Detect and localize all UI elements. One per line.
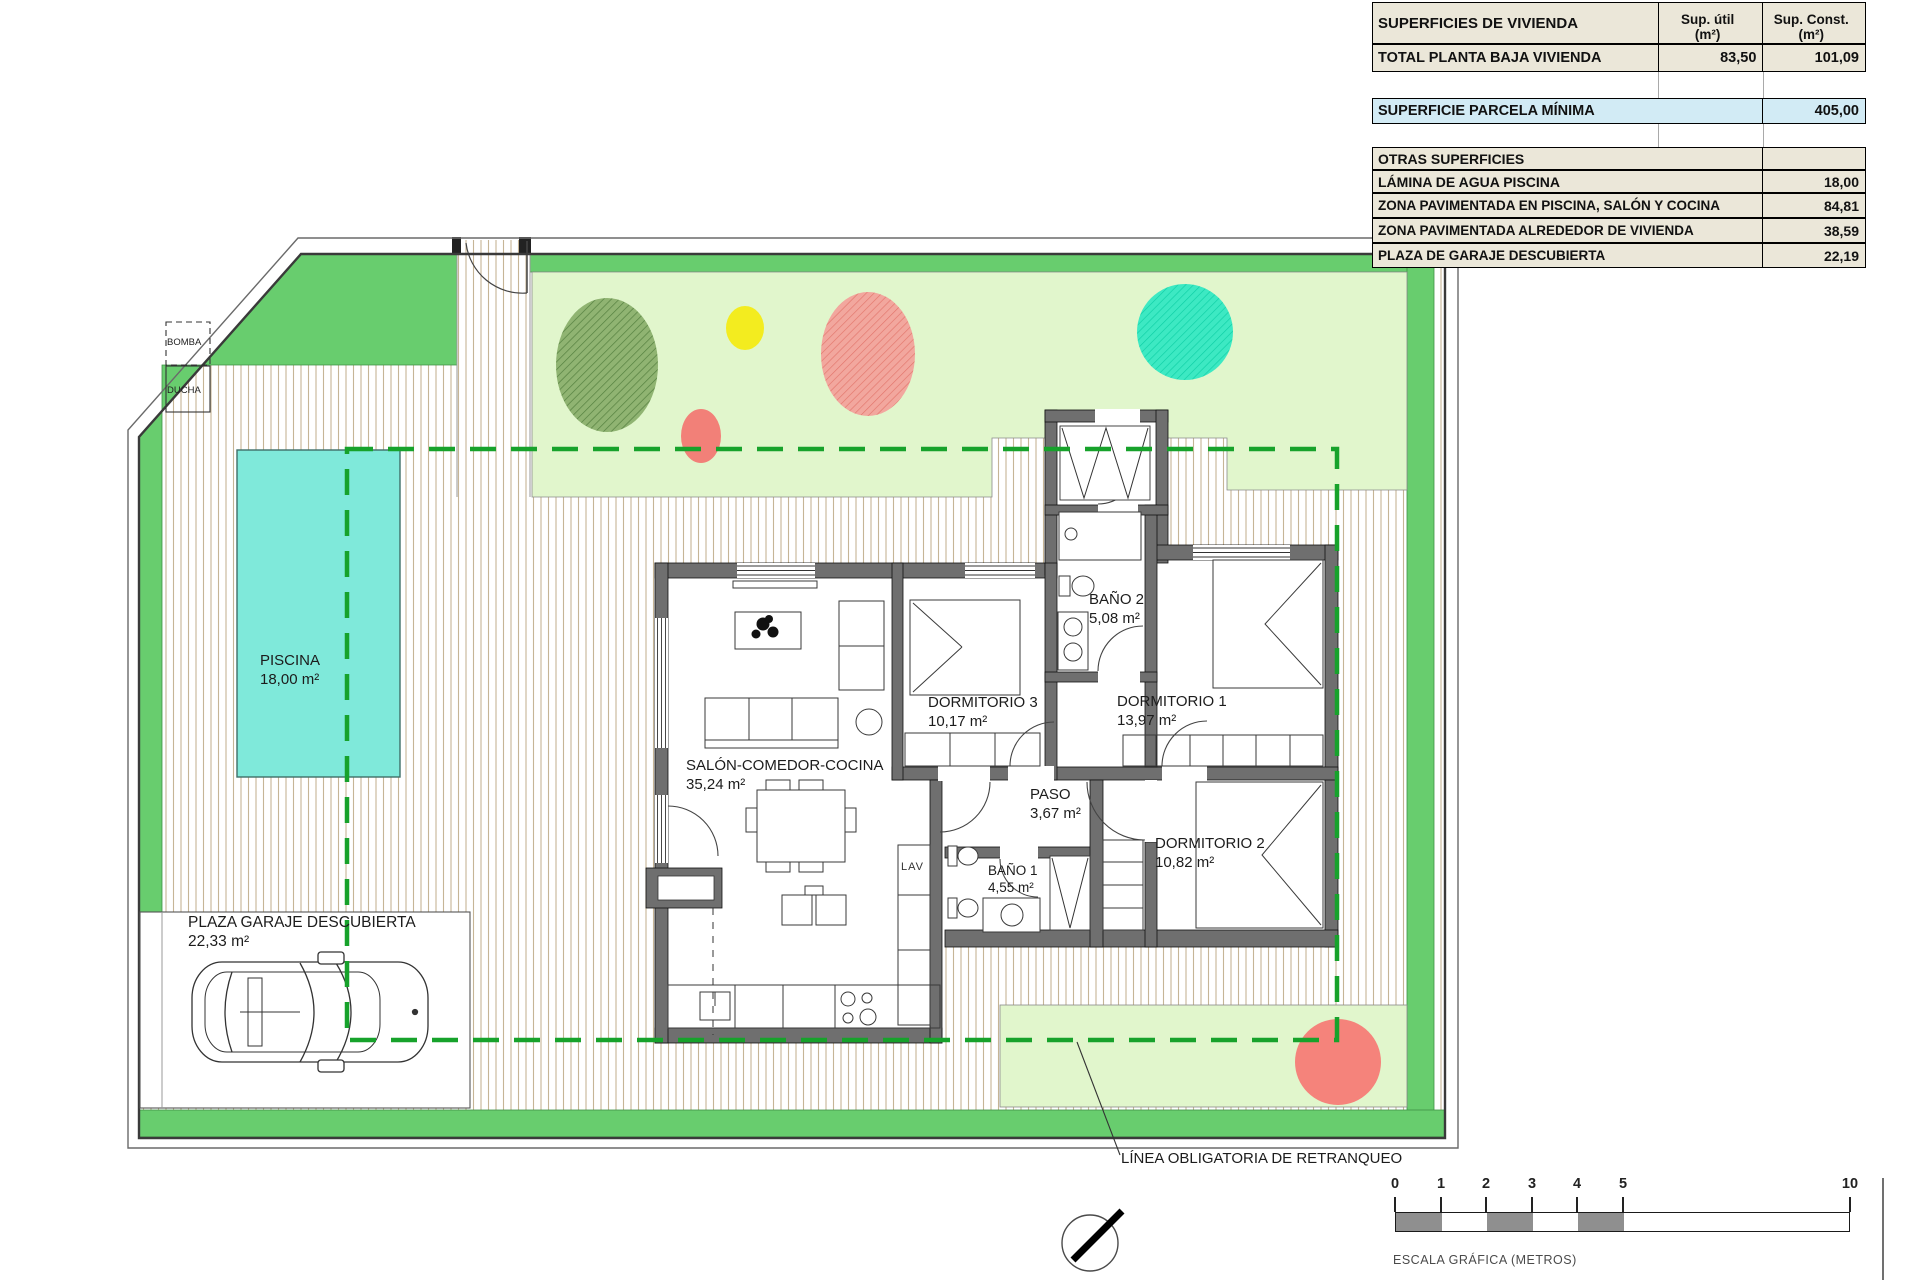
shower-label: DUCHA: [167, 385, 201, 397]
setback-label: LÍNEA OBLIGATORIA DE RETRANQUEO: [1121, 1150, 1402, 1169]
entrance-walkway: [452, 237, 531, 497]
pump-label: BOMBA: [167, 337, 201, 349]
room-label-paso: PASO 3,67 m²: [1030, 786, 1081, 824]
terrace-planter: [658, 876, 714, 900]
table-row-zona-vivienda: ZONA PAVIMENTADA ALREDEDOR DE VIVIENDA 3…: [1372, 218, 1866, 243]
pool: [237, 450, 400, 777]
table-row-garaje: PLAZA DE GARAJE DESCUBIERTA 22,19: [1372, 243, 1866, 268]
scale-bar-segments: [1395, 1212, 1850, 1232]
scale-caption: ESCALA GRÁFICA (METROS): [1393, 1253, 1577, 1267]
scale-tick-label: 3: [1528, 1176, 1536, 1192]
scale-tick-label: 5: [1619, 1176, 1627, 1192]
table-row-zona-piscina: ZONA PAVIMENTADA EN PISCINA, SALÓN Y COC…: [1372, 193, 1866, 218]
table-row-total: TOTAL PLANTA BAJA VIVIENDA 83,50 101,09: [1372, 44, 1866, 72]
north-indicator-icon: [1062, 1211, 1122, 1271]
tree-salmon: [821, 292, 915, 416]
table-header-row: SUPERFICIES DE VIVIENDA Sup. útil (m²) S…: [1372, 2, 1866, 44]
scale-tick-label: 10: [1842, 1176, 1858, 1192]
laundry-label: LAV: [901, 861, 924, 875]
table-row-parcela: SUPERFICIE PARCELA MÍNIMA 405,00: [1372, 98, 1866, 124]
site-plan-page: PISCINA 18,00 m² PLAZA GARAJE DESCUBIERT…: [0, 0, 1920, 1280]
table-row-otras: OTRAS SUPERFICIES: [1372, 147, 1866, 170]
room-label-bano2: BAÑO 2 5,08 m²: [1089, 591, 1144, 629]
pool-label: PISCINA 18,00 m²: [260, 652, 320, 690]
garage-label: PLAZA GARAJE DESCUBIERTA 22,33 m²: [188, 913, 416, 952]
tree-yellow: [726, 306, 764, 350]
table-row-lamina: LÁMINA DE AGUA PISCINA 18,00: [1372, 170, 1866, 193]
tree-dark-green: [556, 298, 658, 432]
scale-tick-label: 1: [1437, 1176, 1445, 1192]
scale-tick-label: 4: [1573, 1176, 1581, 1192]
room-label-salon: SALÓN-COMEDOR-COCINA 35,24 m²: [686, 757, 884, 795]
scale-tick-label: 0: [1391, 1176, 1399, 1192]
tree-teal: [1137, 284, 1233, 380]
scale-tick-label: 2: [1482, 1176, 1490, 1192]
tree-small-red: [681, 409, 721, 463]
car-icon: [192, 952, 428, 1072]
room-label-dorm3: DORMITORIO 3 10,17 m²: [928, 694, 1038, 732]
room-label-dorm1: DORMITORIO 1 13,97 m²: [1117, 693, 1227, 731]
room-label-bano1: BAÑO 1 4,55 m²: [988, 863, 1038, 897]
room-label-dorm2: DORMITORIO 2 10,82 m²: [1155, 835, 1265, 873]
